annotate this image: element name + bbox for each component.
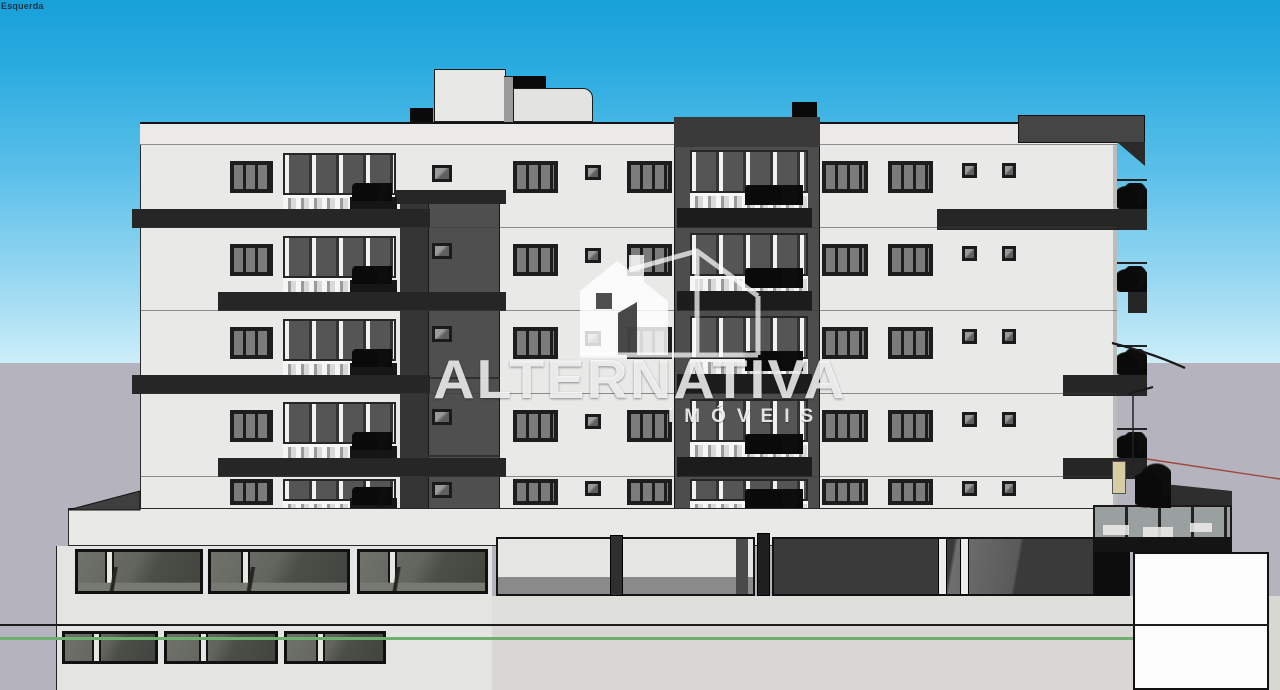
tower-top-band [674,117,820,147]
shaft-cap [395,190,506,204]
right-window-sq2 [1002,412,1016,427]
right-window-2 [888,161,933,193]
center-window-1 [513,479,558,505]
garage-interior [360,567,485,591]
building-elevation [0,0,1280,690]
right-window-2 [888,479,933,505]
shaft-window [432,326,452,342]
tower-plant [745,185,803,205]
slab-band-left [218,292,506,311]
right-window-sq1 [962,412,977,427]
ground-column-dark-1 [610,535,623,596]
floor-line [140,310,1117,311]
slab-band-right [1128,292,1147,313]
center-window-sq [585,331,601,346]
floor-line [140,476,1117,477]
balcony-plant [352,266,392,284]
shaft-floor-line-2 [428,455,500,457]
roof-box-gray-right [1018,115,1145,143]
ground-opening-right [772,537,1095,596]
kiosk-interior-shape [1103,525,1129,535]
garage-column [960,539,969,594]
center-window-2 [627,479,672,505]
right-window-1 [822,479,868,505]
kiosk-interior-shape [1190,523,1212,532]
balcony-plant [352,349,392,367]
tower-plant [745,268,803,288]
garage-opening-r1-0 [75,549,203,594]
left-window [230,410,273,442]
center-window-1 [513,161,558,193]
roof-box-small-black [410,108,433,122]
shaft-window [432,409,452,425]
right-window-sq1 [962,329,977,344]
right-window-1 [822,410,868,442]
right-window-1 [822,244,868,276]
street-dark-line [0,624,1269,626]
shaft-window [432,243,452,259]
left-window [230,161,273,193]
tower-chimney [792,102,817,117]
edge-balcony-plant [1117,432,1147,458]
tower-slab-band [677,457,812,477]
garage-opening-r1-2 [357,549,488,594]
center-window-sq [585,481,601,496]
right-window-2 [888,244,933,276]
edge-balcony-rail [1117,345,1147,347]
kiosk-dark-base [1093,537,1232,552]
right-window-sq2 [1002,481,1016,496]
sketchup-elevation-view: Esquerda ALTERNATIVA IMÓVEIS [0,0,1280,690]
roof-box-white-2 [513,88,593,122]
edge-balcony-rail [1117,179,1147,181]
left-window [230,479,273,505]
center-window-2 [627,161,672,193]
slab-band-left [218,458,506,477]
center-window-sq [585,248,601,263]
right-window-1 [822,161,868,193]
ground-column-dark-2 [757,533,770,596]
right-window-sq1 [962,246,977,261]
center-window-sq [585,414,601,429]
center-window-sq [585,165,601,180]
right-window-sq2 [1002,246,1016,261]
ground-column-mid [736,539,748,594]
slab-band-left [132,209,430,228]
shaft-window [432,165,452,182]
white-board [1133,552,1269,690]
tower-slab-band [677,374,812,394]
garage-column [938,539,947,594]
edge-balcony-plant [1117,266,1147,292]
left-window [230,327,273,359]
right-window-sq1 [962,163,977,178]
center-window-2 [627,244,672,276]
center-window-2 [627,327,672,359]
ground-opening-center [496,537,755,596]
garage-interior [211,567,347,591]
roof-box-white-1 [434,69,506,122]
garage-interior [78,567,200,591]
right-window-sq2 [1002,329,1016,344]
center-window-1 [513,244,558,276]
edge-balcony-rail [1117,262,1147,264]
right-window-1 [822,327,868,359]
left-window [230,244,273,276]
tower-slab-band [677,208,812,228]
center-window-1 [513,410,558,442]
kiosk-tree [1135,463,1171,508]
shaft-floor-line-1 [428,377,500,379]
parapet [140,122,1117,145]
center-window-1 [513,327,558,359]
tower-plant [745,351,803,371]
street-green-line [0,637,1133,640]
balcony-plant [352,487,392,505]
garage-opening-r2-0 [62,631,158,664]
edge-balcony-plant [1117,183,1147,209]
center-window-2 [627,410,672,442]
floor-line [140,393,1117,394]
edge-balcony-rail [1117,428,1147,430]
tower-plant [745,434,803,454]
kiosk-tan-wall [1112,461,1126,494]
shaft-window [432,482,452,498]
floor-line [140,227,1117,228]
right-window-2 [888,327,933,359]
right-window-2 [888,410,933,442]
slab-band-left [132,375,430,394]
tower-slab-band [677,291,812,311]
right-window-sq1 [962,481,977,496]
roof-box-side [504,76,513,122]
podium-base-band [492,596,1133,625]
garage-opening-r2-1 [164,631,278,664]
garage-opening-r1-1 [208,549,350,594]
balcony-plant [352,432,392,450]
edge-balcony-plant [1117,349,1147,375]
garage-opening-r2-2 [284,631,386,664]
balcony-plant [352,183,392,201]
right-window-sq2 [1002,163,1016,178]
tower-plant [745,489,803,509]
